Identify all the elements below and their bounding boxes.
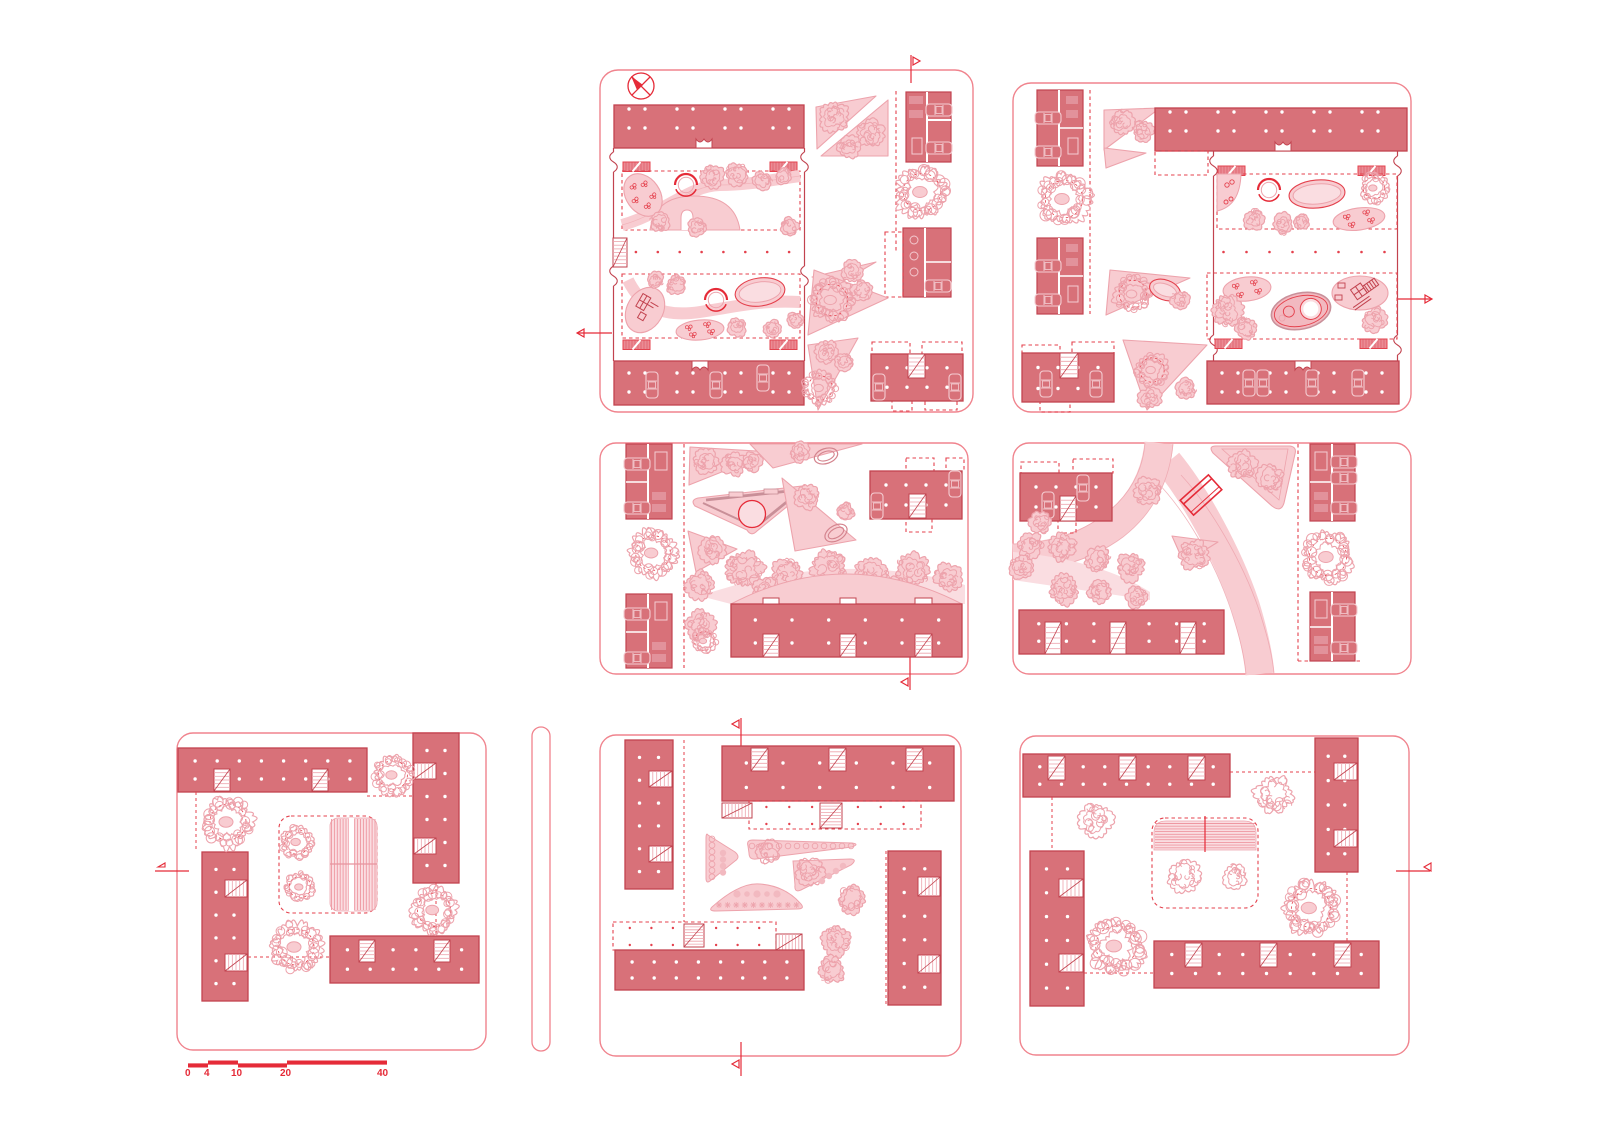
svg-text:0: 0 (185, 1068, 191, 1079)
svg-text:4: 4 (204, 1068, 210, 1079)
svg-text:10: 10 (231, 1068, 243, 1079)
svg-text:20: 20 (280, 1068, 292, 1079)
svg-text:40: 40 (377, 1068, 389, 1079)
